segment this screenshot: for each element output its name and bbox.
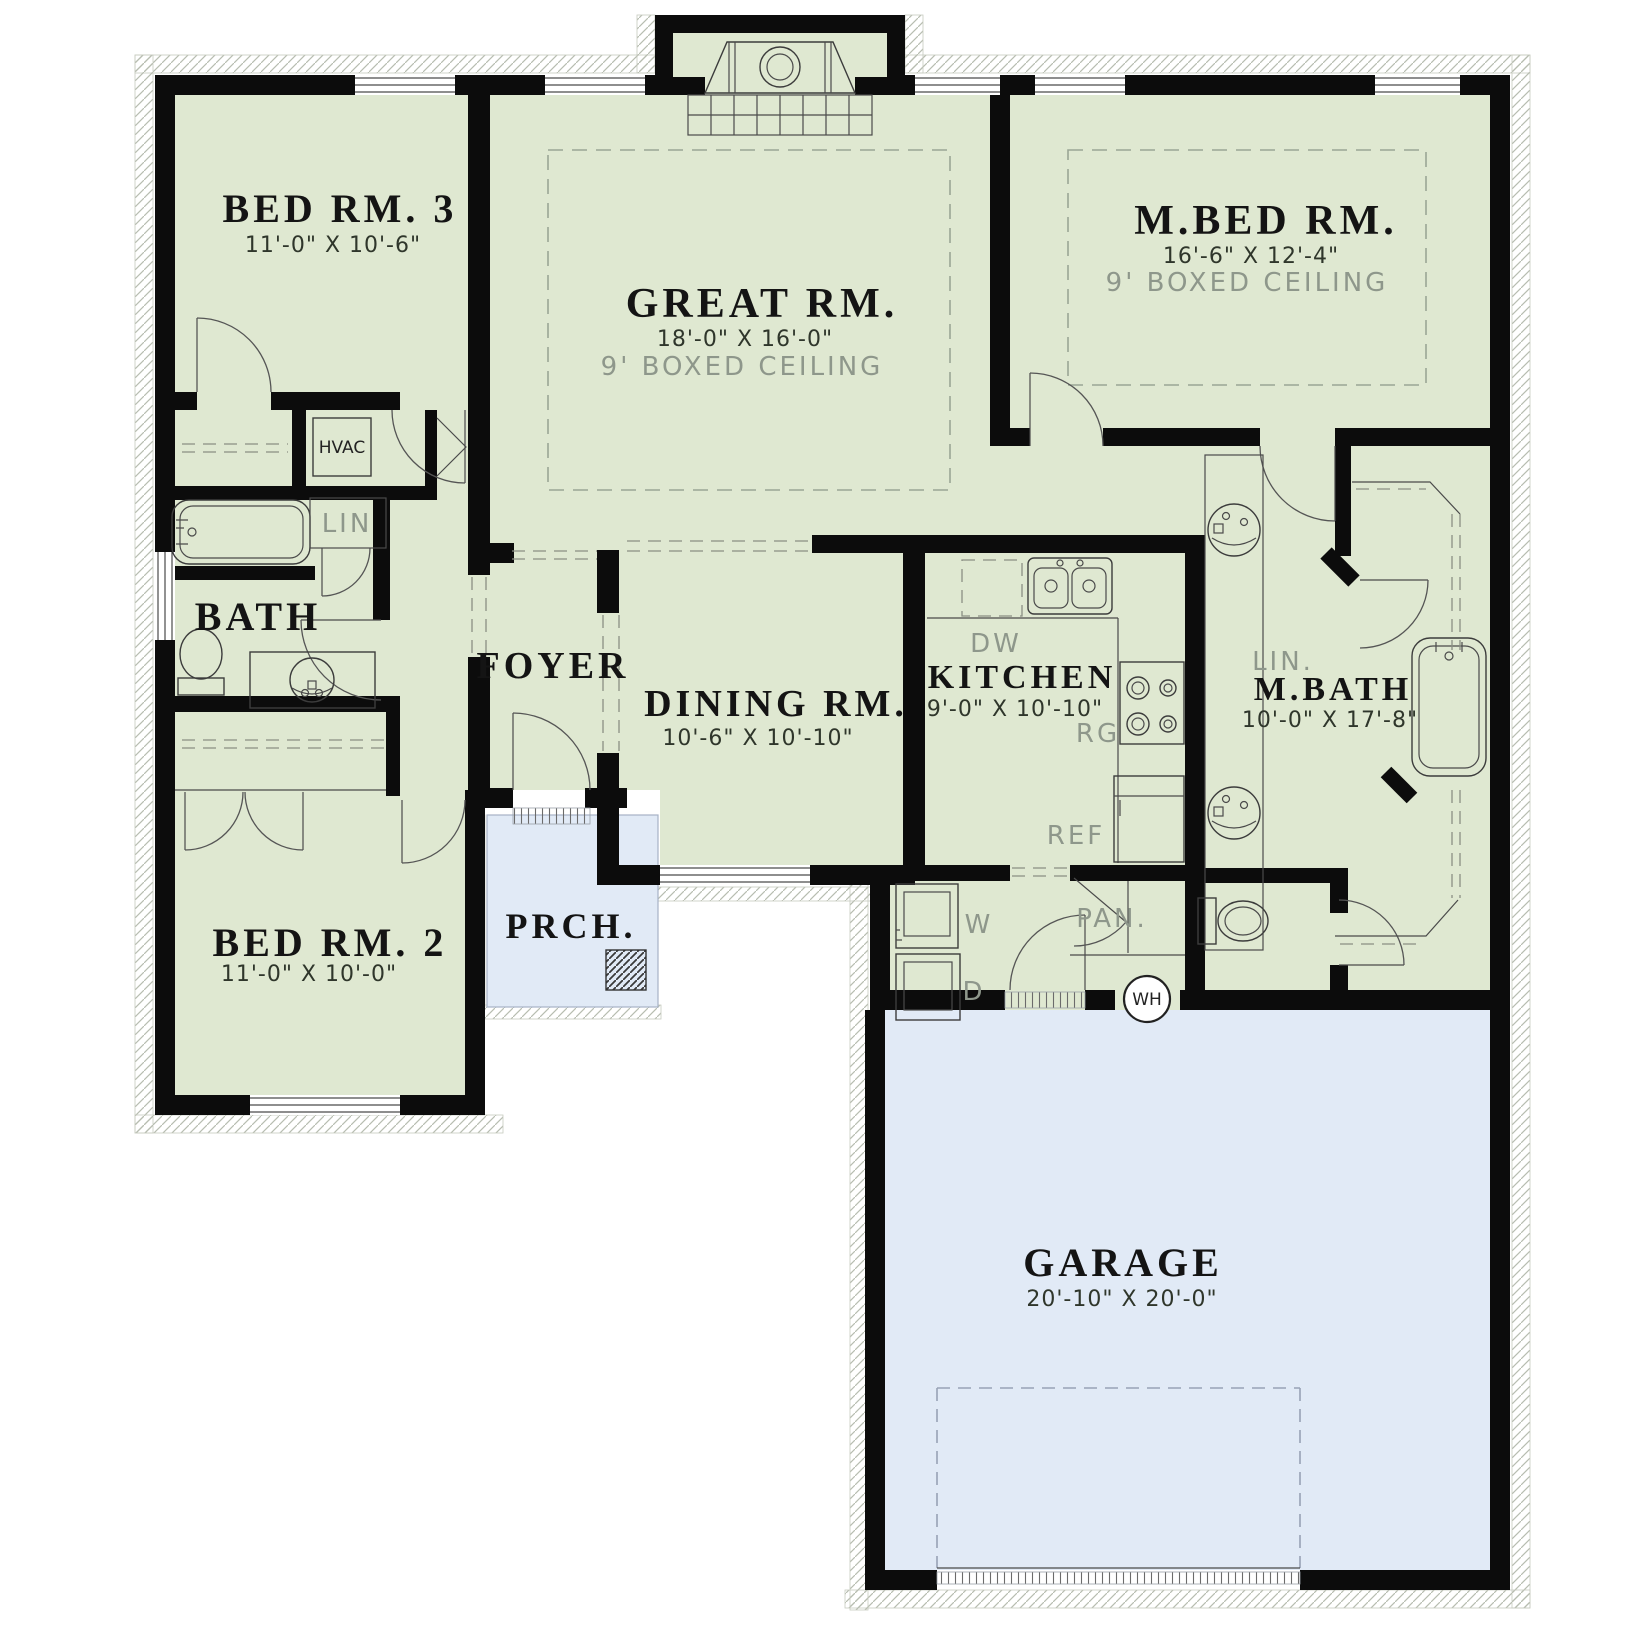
refrigerator-label: REF [1047, 821, 1105, 851]
bed3-dims: 11'-0" X 10'-6" [245, 233, 421, 258]
mbed-dims: 16'-6" X 12'-4" [1163, 244, 1339, 269]
bath-name: BATH [195, 594, 321, 639]
great-dims: 18'-0" X 16'-0" [657, 327, 833, 352]
linen-hall-label: LIN [322, 509, 373, 539]
window-bath-left [155, 552, 175, 640]
mbed-name: M.BED RM. [1134, 198, 1397, 244]
garage-name: GARAGE [1023, 1240, 1223, 1285]
bed2-name: BED RM. 2 [213, 920, 448, 965]
floor-plan-drawing: BED RM. 3 11'-0" X 10'-6" GREAT RM. 18'-… [0, 0, 1650, 1650]
foyer-name: FOYER [477, 645, 630, 687]
mbed-ceiling: 9' BOXED CEILING [1106, 268, 1389, 298]
hvac-label: HVAC [319, 438, 366, 458]
garage-dims: 20'-10" X 20'-0" [1026, 1287, 1217, 1312]
mbath-dims: 10'-0" X 17'-8" [1242, 708, 1418, 733]
dining-dims: 10'-6" X 10'-10" [662, 726, 853, 751]
mbath-name: M.BATH [1254, 671, 1412, 708]
great-ceiling: 9' BOXED CEILING [601, 352, 884, 382]
great-name: GREAT RM. [626, 281, 898, 327]
pantry-label: PAN. [1076, 904, 1148, 934]
porch-name: PRCH. [506, 906, 637, 946]
range-label: RG [1076, 719, 1120, 749]
water-heater-label: WH [1132, 990, 1162, 1010]
window-mbed-right [1375, 75, 1460, 95]
window-mbed-left [1035, 75, 1125, 95]
window-bed2-bottom [250, 1095, 400, 1115]
window-right-of-fireplace [915, 75, 1000, 95]
window-great-top [545, 75, 645, 95]
dryer-label: D [962, 977, 985, 1007]
window-bed3-top [355, 75, 455, 95]
bed3-name: BED RM. 3 [223, 186, 458, 231]
dining-name: DINING RM. [644, 683, 908, 725]
bed2-dims: 11'-0" X 10'-0" [221, 962, 397, 987]
fireplace-bump-floor [673, 33, 887, 77]
window-dining-bottom [660, 865, 810, 885]
kitchen-name: KITCHEN [928, 659, 1117, 696]
washer-label: W [965, 910, 994, 940]
floor-plan-page: BED RM. 3 11'-0" X 10'-6" GREAT RM. 18'-… [0, 0, 1650, 1650]
porch-column [606, 950, 646, 990]
dishwasher-label: DW [970, 629, 1022, 659]
